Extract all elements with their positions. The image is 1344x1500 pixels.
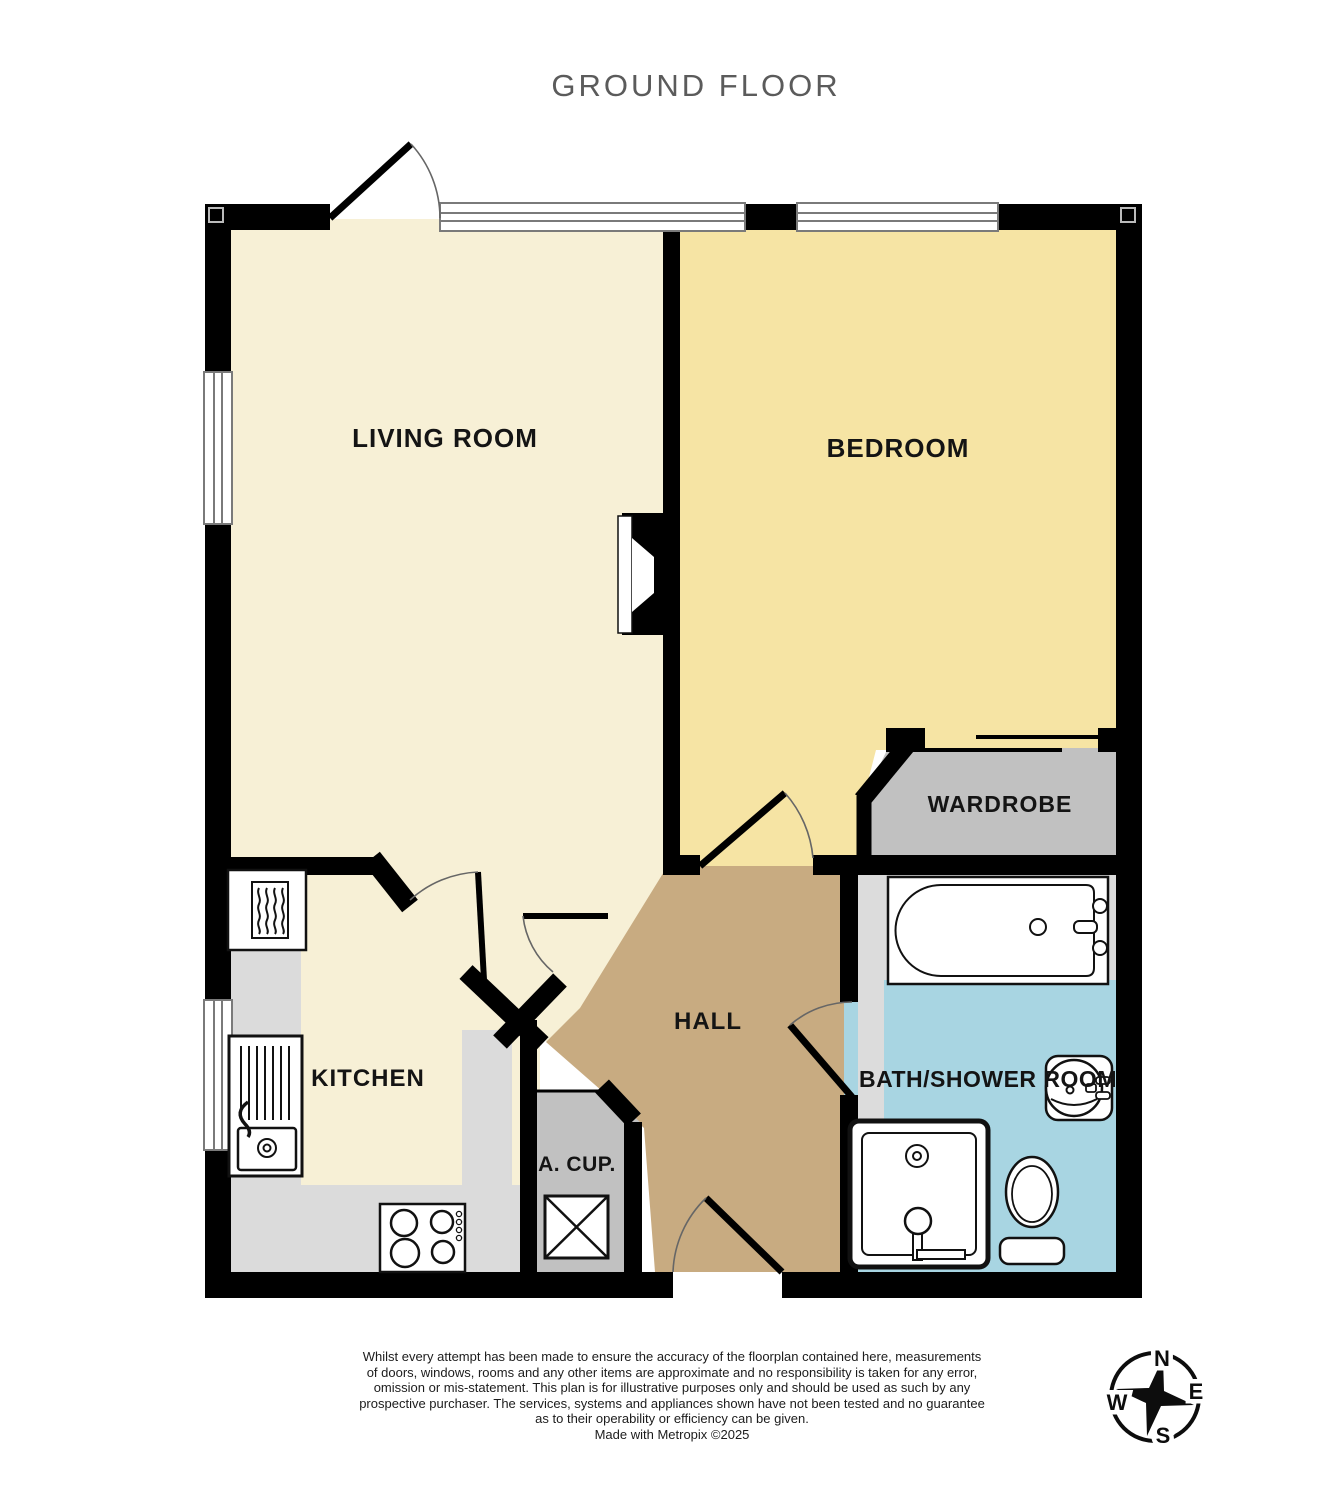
cupboard-east-wall xyxy=(624,1122,642,1272)
disclaimer: Whilst every attempt has been made to en… xyxy=(0,1349,1344,1442)
living-room-top-window xyxy=(440,203,745,231)
wardrobe-label: WARDROBE xyxy=(928,791,1073,817)
shower-icon xyxy=(850,1121,988,1267)
bedroom-label: BEDROOM xyxy=(827,433,970,463)
toilet-icon xyxy=(1000,1157,1064,1264)
bathroom-ledge xyxy=(858,980,884,1122)
living-room-side-window xyxy=(204,372,232,524)
bath-shower-room-label: BATH/SHOWER ROOM xyxy=(859,1066,1117,1092)
cupboard-west-wall xyxy=(520,1020,537,1272)
disclaimer-line: omission or mis-statement. This plan is … xyxy=(0,1380,1344,1396)
floor-plan: LIVING ROOM BEDROOM WARDROBE KITCHEN HAL… xyxy=(0,0,1344,1500)
kitchen-sink-icon xyxy=(229,1036,302,1176)
airing-cupboard-label: A. CUP. xyxy=(538,1153,616,1176)
disclaimer-line: of doors, windows, rooms and any other i… xyxy=(0,1365,1344,1381)
kitchen-counter-bottom xyxy=(231,1185,520,1272)
disclaimer-line: as to their operability or efficiency ca… xyxy=(0,1411,1344,1427)
kitchen-label: KITCHEN xyxy=(311,1065,425,1092)
radiator-icon xyxy=(228,870,306,950)
kitchen-counter-right xyxy=(462,1030,512,1190)
front-door-opening xyxy=(673,1272,782,1298)
hob-icon xyxy=(380,1204,465,1272)
hall-label: HALL xyxy=(674,1008,742,1035)
living-bedroom-wall xyxy=(663,230,680,857)
bathtub-icon xyxy=(888,877,1108,984)
disclaimer-line: prospective purchaser. The services, sys… xyxy=(0,1396,1344,1412)
bathroom-top-wall xyxy=(840,855,1116,875)
hot-water-cylinder-icon xyxy=(545,1196,608,1258)
bedroom-window xyxy=(797,203,998,231)
metropix-credit: Made with Metropix ©2025 xyxy=(0,1427,1344,1443)
living-room-label: LIVING ROOM xyxy=(352,423,538,453)
bathroom-west-wall-upper xyxy=(840,875,858,1002)
disclaimer-line: Whilst every attempt has been made to en… xyxy=(0,1349,1344,1365)
